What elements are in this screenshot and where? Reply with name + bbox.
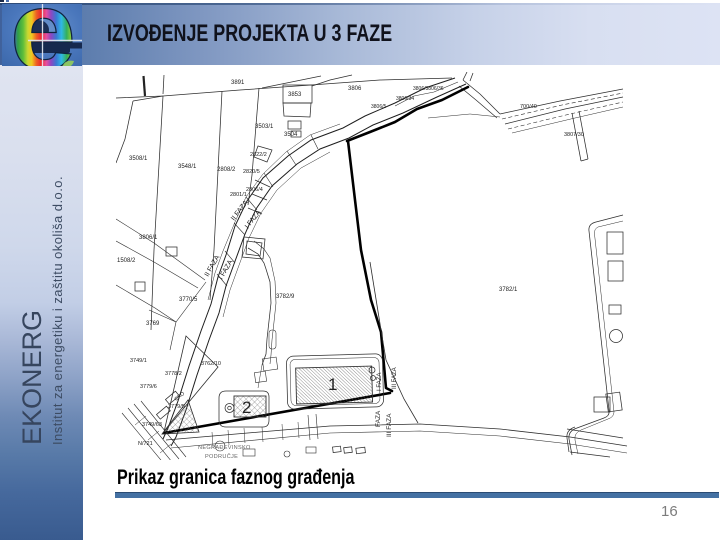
svg-text:3806/3806/36: 3806/3806/36 bbox=[413, 86, 444, 92]
svg-text:III FAZA: III FAZA bbox=[386, 413, 393, 437]
svg-text:II FAZA: II FAZA bbox=[230, 199, 250, 222]
svg-text:3806/34: 3806/34 bbox=[396, 96, 414, 102]
svg-text:3782/9: 3782/9 bbox=[276, 294, 295, 300]
svg-text:2808/2: 2808/2 bbox=[217, 167, 236, 173]
svg-text:1508/2: 1508/2 bbox=[117, 258, 136, 264]
svg-text:3762/10: 3762/10 bbox=[201, 361, 221, 367]
svg-text:PODRUČJE: PODRUČJE bbox=[205, 453, 238, 460]
svg-text:2806/4: 2806/4 bbox=[246, 187, 263, 193]
svg-text:3548/1: 3548/1 bbox=[178, 164, 197, 170]
svg-text:CRO: CRO bbox=[174, 391, 187, 403]
svg-text:1: 1 bbox=[328, 375, 337, 394]
svg-text:3779/6: 3779/6 bbox=[140, 384, 157, 390]
svg-text:3891: 3891 bbox=[231, 80, 245, 86]
svg-text:3807/30: 3807/30 bbox=[564, 132, 584, 138]
svg-text:3769: 3769 bbox=[146, 321, 160, 327]
svg-text:3806/5: 3806/5 bbox=[371, 104, 387, 110]
svg-text:NEGRAĐEVINSKO: NEGRAĐEVINSKO bbox=[198, 445, 251, 451]
svg-text:3508/1: 3508/1 bbox=[129, 156, 148, 162]
svg-text:3749/1: 3749/1 bbox=[130, 358, 147, 364]
svg-text:FAZA: FAZA bbox=[375, 410, 382, 427]
svg-text:2822/2: 2822/2 bbox=[250, 152, 267, 158]
svg-text:3806/1: 3806/1 bbox=[139, 235, 158, 241]
svg-text:3504: 3504 bbox=[284, 132, 298, 138]
svg-text:3770/5: 3770/5 bbox=[179, 297, 198, 303]
svg-text:3806: 3806 bbox=[348, 86, 362, 92]
svg-text:3749/63: 3749/63 bbox=[142, 422, 162, 428]
svg-text:2: 2 bbox=[242, 398, 251, 417]
svg-text:I FAZA: I FAZA bbox=[377, 373, 383, 391]
svg-text:2820/5: 2820/5 bbox=[243, 169, 260, 175]
svg-text:3853: 3853 bbox=[288, 92, 302, 98]
svg-text:III FAZA: III FAZA bbox=[392, 367, 398, 389]
svg-text:3503/1: 3503/1 bbox=[255, 124, 274, 130]
svg-text:700/40: 700/40 bbox=[520, 104, 537, 110]
svg-text:I FAZA: I FAZA bbox=[244, 209, 263, 230]
svg-text:2801/1: 2801/1 bbox=[230, 192, 247, 198]
svg-text:3779/5: 3779/5 bbox=[168, 404, 185, 410]
svg-text:N/721: N/721 bbox=[138, 441, 153, 447]
svg-text:3778/2: 3778/2 bbox=[165, 371, 182, 377]
svg-text:3782/1: 3782/1 bbox=[499, 287, 518, 293]
